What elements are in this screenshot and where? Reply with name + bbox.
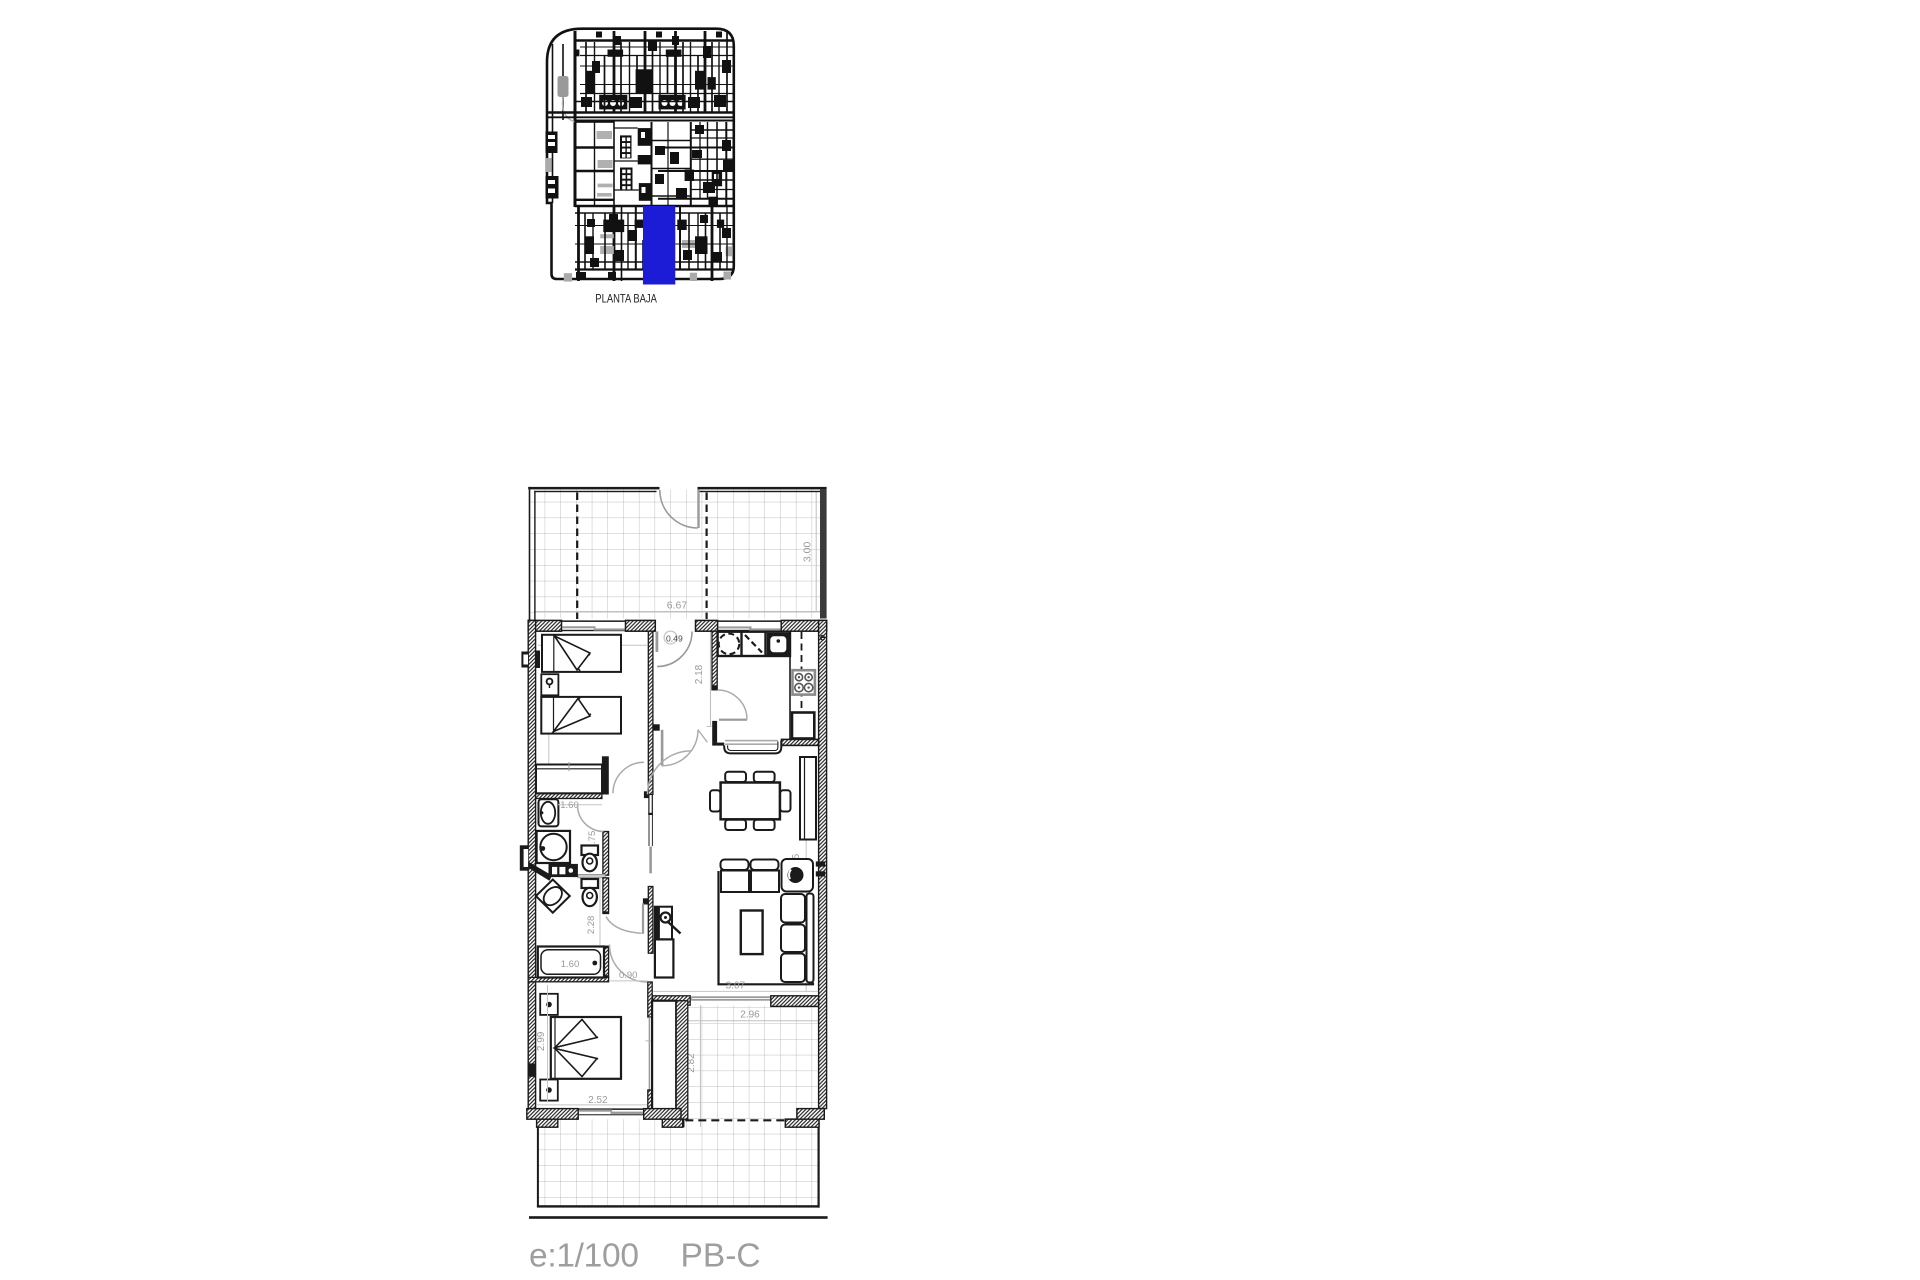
svg-text:PLANTA BAJA: PLANTA BAJA xyxy=(595,292,657,306)
svg-text:2.52: 2.52 xyxy=(588,1095,608,1106)
svg-text:3.00: 3.00 xyxy=(801,542,813,563)
svg-text:2.96: 2.96 xyxy=(740,1010,760,1021)
svg-text:6.67: 6.67 xyxy=(667,600,688,612)
svg-text:3.07: 3.07 xyxy=(726,981,746,992)
svg-text:1.60: 1.60 xyxy=(561,959,580,970)
svg-text:0.90: 0.90 xyxy=(619,970,638,981)
svg-text:2.28: 2.28 xyxy=(586,916,597,935)
svg-text:e:1/100: e:1/100 xyxy=(529,1238,639,1275)
svg-text:PB-C: PB-C xyxy=(681,1238,761,1275)
svg-text:1.60: 1.60 xyxy=(560,800,579,811)
svg-text:2.18: 2.18 xyxy=(694,664,705,684)
svg-text:0.49: 0.49 xyxy=(666,633,683,643)
svg-text:2.99: 2.99 xyxy=(536,1031,547,1051)
svg-text:e: e xyxy=(820,633,826,644)
